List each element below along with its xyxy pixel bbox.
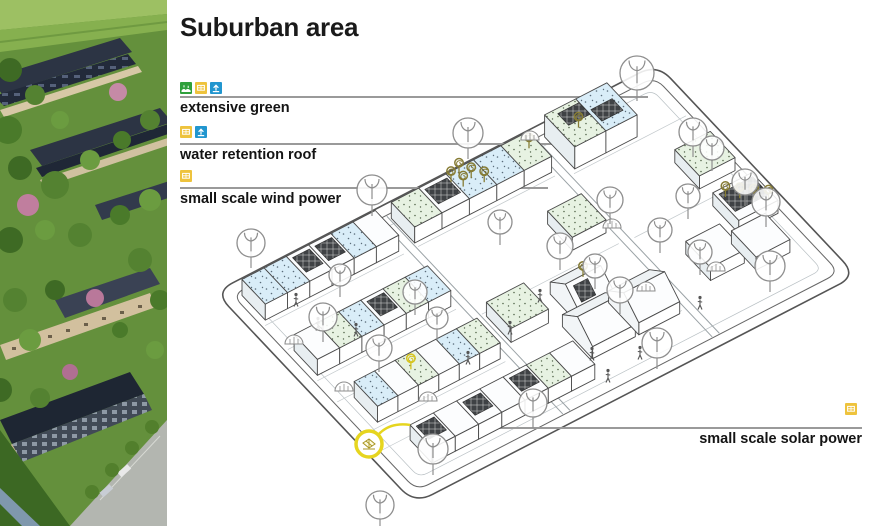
- tree-icon: [418, 434, 448, 475]
- building: [486, 283, 548, 343]
- bush-icon: [335, 382, 353, 391]
- legend-icons-small-scale-solar-power: [845, 403, 857, 415]
- person-icon: [606, 369, 610, 383]
- tree-icon: [547, 233, 573, 270]
- legend-label: extensive green: [180, 100, 290, 116]
- energy-icon: [180, 126, 192, 138]
- legend-icons-water-retention-roof: [180, 126, 207, 138]
- tree-icon: [366, 491, 394, 526]
- tree-icon: [519, 389, 547, 428]
- tree-icon: [357, 175, 387, 216]
- suburban-diagram: [0, 0, 882, 526]
- tree-icon: [237, 229, 265, 268]
- tree-icon: [453, 118, 483, 159]
- legend-icons-small-scale-wind-power: [180, 170, 192, 182]
- legend-label: water retention roof: [180, 147, 316, 163]
- legend-label: small scale solar power: [699, 431, 862, 447]
- person-icon: [638, 346, 642, 360]
- callout-connector: [378, 424, 410, 435]
- building: [545, 83, 638, 169]
- tree-icon: [488, 210, 512, 245]
- tree-icon: [642, 328, 672, 369]
- energy-icon: [195, 82, 207, 94]
- tree-icon: [755, 251, 785, 292]
- infographic-page: Suburban area extensive greenwater re: [0, 0, 882, 526]
- green-roof-icon: [180, 82, 192, 94]
- legend-icons-extensive-green: [180, 82, 222, 94]
- energy-icon: [180, 170, 192, 182]
- tree-icon: [329, 264, 351, 297]
- water-icon: [210, 82, 222, 94]
- tree-icon: [620, 56, 654, 101]
- solar-callout-icon: [356, 431, 382, 457]
- water-icon: [195, 126, 207, 138]
- person-icon: [698, 296, 702, 310]
- energy-icon: [845, 403, 857, 415]
- legend-label: small scale wind power: [180, 191, 341, 207]
- tree-icon: [676, 184, 700, 219]
- tree-icon: [648, 218, 672, 253]
